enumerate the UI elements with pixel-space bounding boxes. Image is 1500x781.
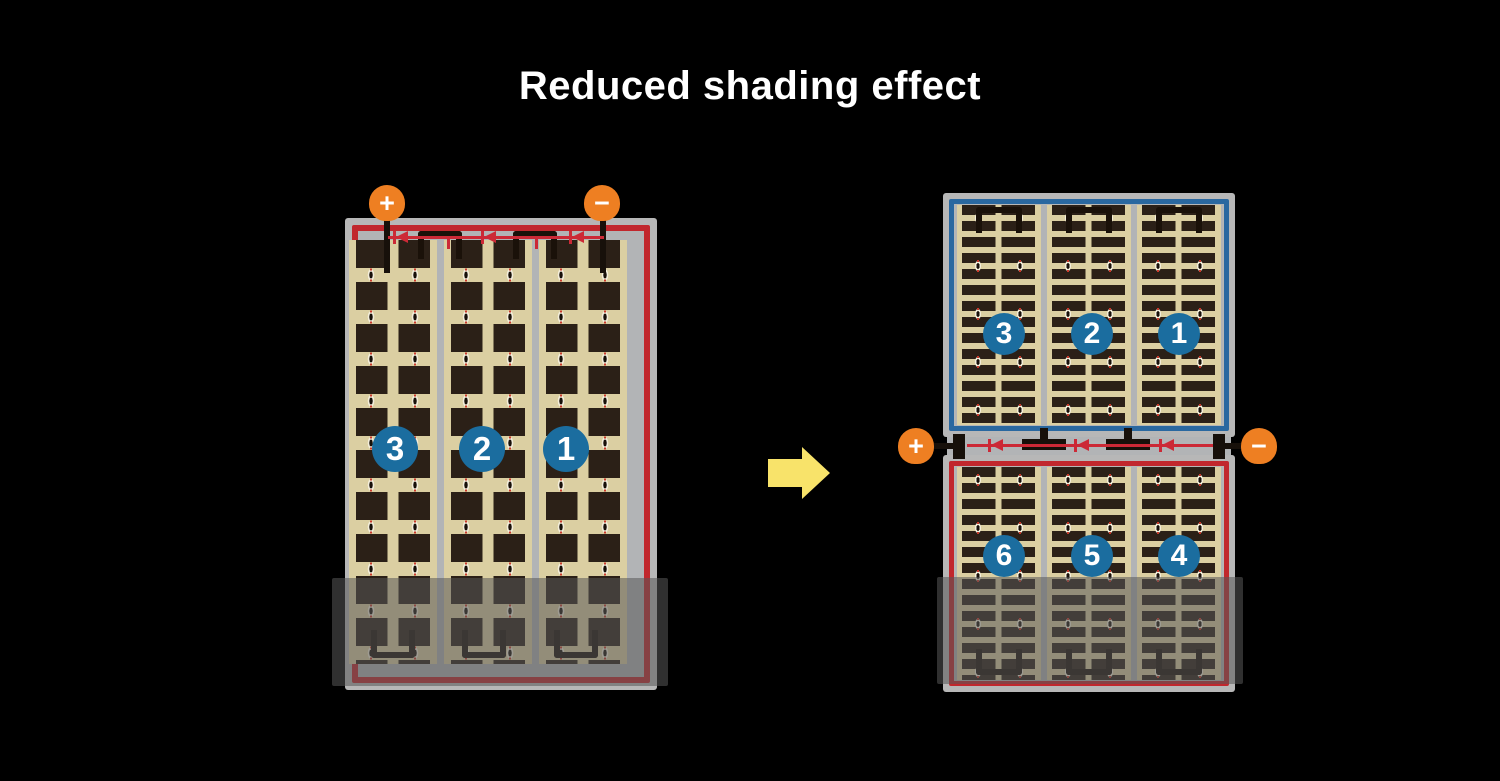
- string-number-label: 5: [1084, 539, 1101, 573]
- negative-terminal-icon: −: [1241, 428, 1277, 464]
- positive-lead-wire: [932, 443, 956, 449]
- bypass-diode-icon: [569, 231, 585, 244]
- bypass-diode-icon: [481, 231, 497, 244]
- string-number-badge: 5: [1071, 535, 1113, 577]
- string-number-label: 4: [1171, 539, 1188, 573]
- string-number-badge: 2: [1071, 313, 1113, 355]
- string-number-badge: 3: [372, 426, 418, 472]
- bypass-diode-icon: [1074, 439, 1090, 452]
- negative-terminal-icon: −: [584, 185, 620, 221]
- diagram-title: Reduced shading effect: [0, 64, 1500, 109]
- diode-tap-tick: [447, 238, 450, 249]
- string-number-badge: 3: [983, 313, 1025, 355]
- string-number-label: 2: [473, 430, 491, 468]
- positive-terminal-icon: +: [898, 428, 934, 464]
- string-number-label: 2: [1084, 317, 1101, 351]
- string-number-badge: 1: [543, 426, 589, 472]
- bypass-diode-icon: [988, 439, 1004, 452]
- negative-terminal-label: −: [594, 190, 610, 217]
- shading-overlay: [937, 577, 1243, 684]
- negative-lead-wire: [600, 220, 606, 273]
- string-number-label: 3: [386, 430, 404, 468]
- shading-overlay: [332, 578, 668, 686]
- positive-terminal-icon: +: [369, 185, 405, 221]
- string-number-label: 1: [557, 430, 575, 468]
- arrow-body: [768, 459, 802, 487]
- string-number-badge: 1: [1158, 313, 1200, 355]
- string-number-badge: 6: [983, 535, 1025, 577]
- bypass-diode-line: [967, 444, 1213, 447]
- bypass-diode-icon: [393, 231, 409, 244]
- string-number-label: 1: [1171, 317, 1188, 351]
- arrow-head: [802, 447, 830, 499]
- busbar-end-block: [1213, 434, 1225, 459]
- diagram-canvas: Reduced shading effect 3 2 1: [0, 0, 1500, 781]
- bypass-diode-icon: [1159, 439, 1175, 452]
- center-junction: + −: [898, 424, 1282, 470]
- bypass-diode-line: [388, 236, 604, 239]
- diode-tap-tick: [535, 238, 538, 249]
- positive-lead-wire: [384, 220, 390, 273]
- string-number-badge: 4: [1158, 535, 1200, 577]
- right-top-half-frame: 3 2 1: [943, 193, 1235, 437]
- string-number-badge: 2: [459, 426, 505, 472]
- string-number-label: 6: [996, 539, 1013, 573]
- positive-terminal-label: +: [908, 433, 924, 460]
- negative-terminal-label: −: [1251, 433, 1267, 460]
- string-number-label: 3: [996, 317, 1013, 351]
- positive-terminal-label: +: [379, 190, 395, 217]
